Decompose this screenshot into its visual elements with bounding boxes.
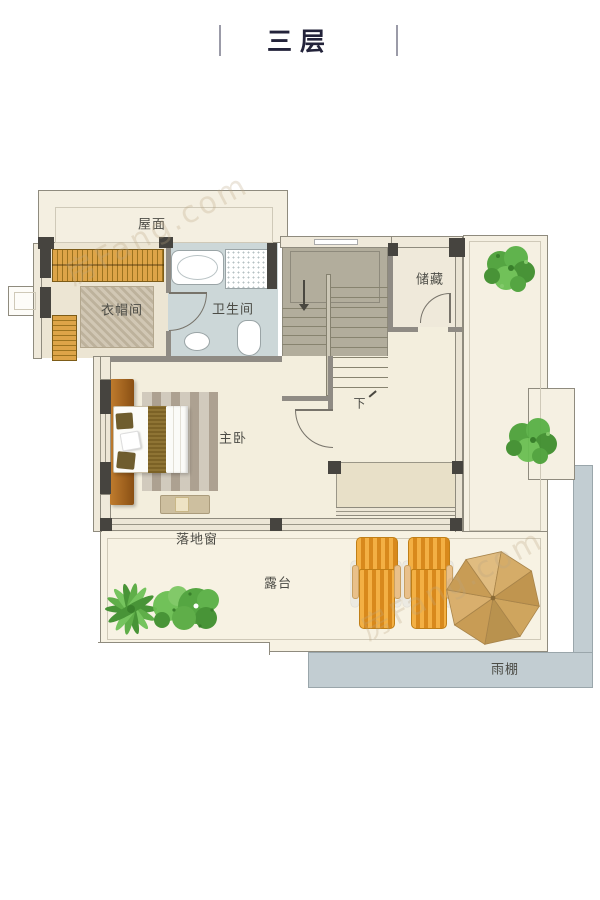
bedroom-west-window [100,414,111,462]
bay-window-block [336,462,462,510]
bedroom-hall-wall [328,356,333,410]
storage-door-leaf [449,293,451,323]
wall-post [100,462,111,494]
storage-left-wall [388,243,393,332]
wardrobe-top-divider [52,264,164,266]
lounge-seat [359,569,395,629]
bed-blanket [148,406,166,473]
wall-post [328,461,341,474]
stairs-down-label: 下 [353,395,366,412]
bathroom-west-wall [166,243,171,293]
wall-post [40,287,51,318]
stair-top-window [314,239,358,245]
lounge-seat [411,569,447,629]
wall-post [38,237,54,249]
lounge-backrest [356,537,398,571]
page-title: 三层 [267,22,333,58]
lounge-armrest [352,565,359,599]
wardrobe-left [52,315,77,361]
wall-post [450,518,462,531]
wall-post [452,461,463,474]
plant-mid-right [500,412,562,470]
bed-pillow-white [120,430,142,451]
wall-post [388,243,398,256]
shower-wall-post [267,243,277,289]
lounge-armrest [394,565,401,599]
bed-pillow [116,451,136,470]
stair-steps-right [330,278,388,396]
stair-down-arrow [303,280,305,304]
wall-post [100,518,112,531]
storage-bottom-wall [388,327,418,332]
canopy-bottom [308,652,593,688]
bathroom-label: 卫生间 [212,299,254,318]
bathroom-west-wall [166,331,171,358]
bedroom-north-wall [110,356,282,362]
storage-label: 储藏 [416,269,444,288]
title-separator-right [396,25,398,56]
title-separator-left [219,25,221,56]
bush-plants [148,578,228,638]
cloakroom-label: 衣帽间 [101,300,143,319]
wall-post [449,238,465,257]
master-bedroom-label: 主卧 [219,428,247,447]
bathtub-basin [177,255,218,280]
wall-post [159,237,173,248]
terrace-label: 露台 [264,573,292,592]
storage-bottom-wall [448,327,462,332]
roof-label: 屋面 [138,214,166,233]
lounge-armrest [404,565,411,599]
canopy-label: 雨棚 [491,659,519,678]
plant-top-right [478,240,540,298]
bench-cushion [175,497,189,512]
terrace-edge-step [98,642,270,655]
bay-window-band [336,507,462,516]
bed-duvet [167,406,188,473]
stair-south-wall [282,396,330,401]
floor-plan-page: 三层 房Fang.com 房Fang.com 屋面 雨棚 [0,0,600,900]
sink [184,332,210,351]
exterior-ledge-inner [14,292,36,310]
floor-window-label: 落地窗 [176,529,218,548]
bed-pillow [115,412,133,429]
parasol-umbrella [444,549,542,647]
east-interior-wall [455,243,463,532]
wall-post [270,518,282,531]
wall-post [100,380,111,414]
bathroom-door-leaf [169,292,207,294]
stair-down-arrowhead [299,304,309,311]
lounge-chair [352,537,400,629]
bedroom-door-leaf [295,409,333,411]
toilet [237,320,261,356]
wall-post [40,249,51,278]
